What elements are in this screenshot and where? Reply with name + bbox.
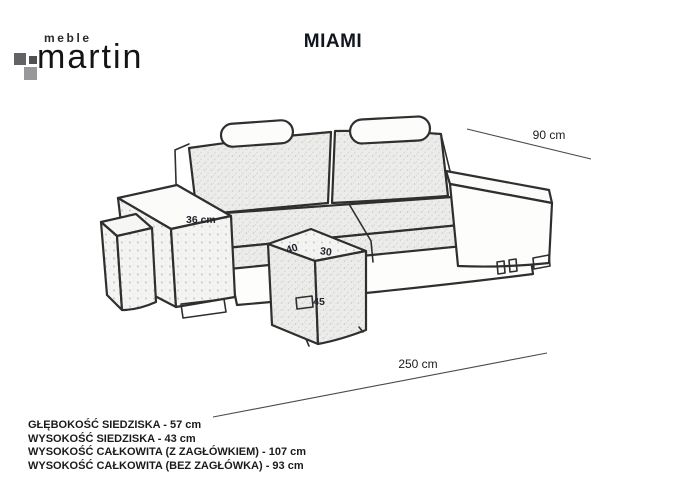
front-pouf-left-face <box>268 244 318 344</box>
depth-dimension-line <box>467 129 591 159</box>
depth-dimension-label: 90 cm <box>533 128 566 142</box>
headrest-left <box>220 120 293 148</box>
spec-total-height-with-headrest: WYSOKOŚĆ CAŁKOWITA (Z ZAGŁÓWKIEM) - 107 … <box>28 446 306 460</box>
length-dimension-line <box>213 353 547 417</box>
spec-list: GŁĘBOKOŚĆ SIEDZISKA - 57 cm WYSOKOŚĆ SIE… <box>28 419 306 473</box>
armrest-dimension-label: 36 cm <box>186 214 216 226</box>
spec-total-height-without-headrest: WYSOKOŚĆ CAŁKOWITA (BEZ ZAGŁÓWKA) - 93 c… <box>28 460 306 474</box>
left-armrest-front <box>171 216 235 307</box>
pouf-height-label: 45 <box>313 296 325 308</box>
headrest-right <box>349 116 430 144</box>
side-pouf-front-face <box>117 228 156 310</box>
product-sheet: meble martin MIAMI <box>0 0 700 495</box>
spec-seat-depth: GŁĘBOKOŚĆ SIEDZISKA - 57 cm <box>28 419 306 433</box>
spec-seat-height: WYSOKOŚĆ SIEDZISKA - 43 cm <box>28 433 306 447</box>
pouf-width-label: 30 <box>319 245 332 259</box>
length-dimension-label: 250 cm <box>398 357 437 371</box>
